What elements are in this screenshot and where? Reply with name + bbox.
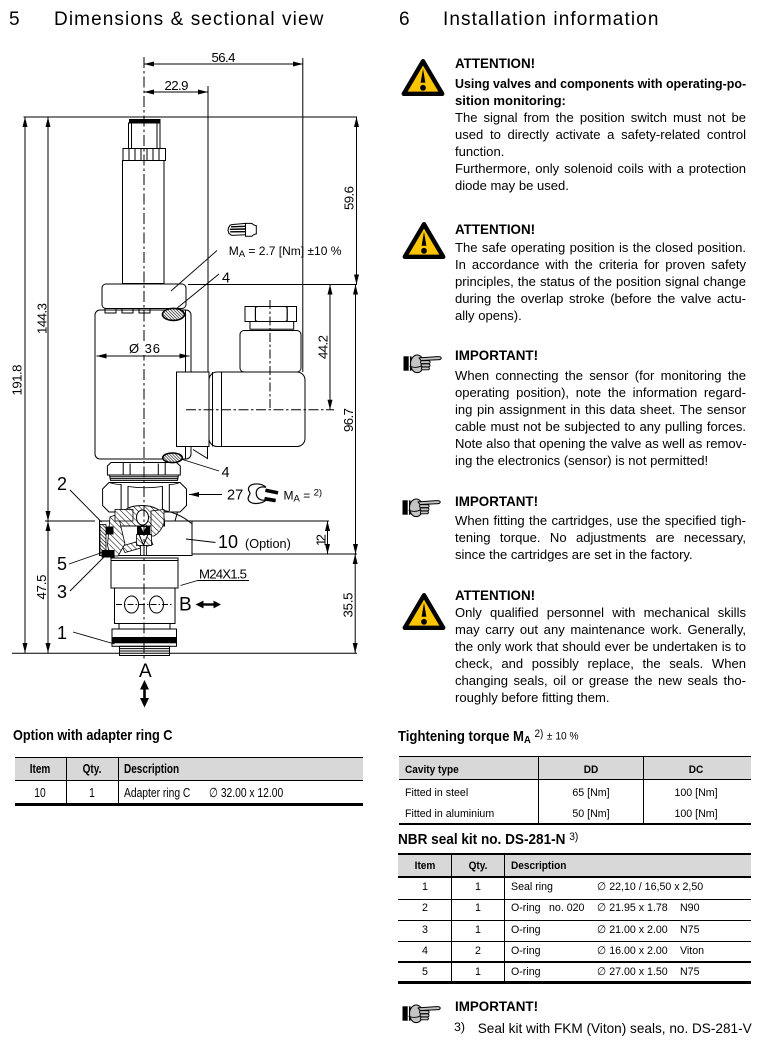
svg-text:44.2: 44.2 (316, 335, 331, 359)
svg-text:4: 4 (222, 271, 230, 287)
svg-text:12: 12 (314, 534, 329, 546)
svg-text:191.8: 191.8 (10, 365, 25, 396)
svg-text:10: 10 (218, 532, 238, 552)
svg-text:MA = 2.7 [Nm] ±10 %: MA = 2.7 [Nm] ±10 % (229, 244, 342, 260)
svg-text:B: B (179, 595, 192, 616)
svg-text:144.3: 144.3 (35, 303, 50, 334)
svg-text:22.9: 22.9 (165, 78, 189, 93)
svg-text:(Option): (Option) (245, 537, 291, 551)
svg-text:27: 27 (227, 488, 243, 504)
svg-text:3: 3 (57, 582, 67, 602)
svg-text:5: 5 (57, 554, 67, 574)
svg-text:4: 4 (222, 465, 230, 481)
svg-text:47.5: 47.5 (34, 575, 49, 600)
svg-text:1: 1 (57, 623, 67, 643)
svg-text:2: 2 (57, 474, 67, 494)
svg-text:Ø 36: Ø 36 (129, 341, 160, 356)
svg-text:35.5: 35.5 (341, 593, 356, 618)
svg-text:M24X1.5: M24X1.5 (199, 567, 247, 582)
svg-text:56.4: 56.4 (212, 50, 236, 65)
svg-text:59.6: 59.6 (342, 186, 357, 210)
svg-text:96.7: 96.7 (341, 408, 356, 432)
svg-text:MA = 2): MA = 2) (284, 488, 323, 505)
svg-text:A: A (139, 661, 152, 682)
